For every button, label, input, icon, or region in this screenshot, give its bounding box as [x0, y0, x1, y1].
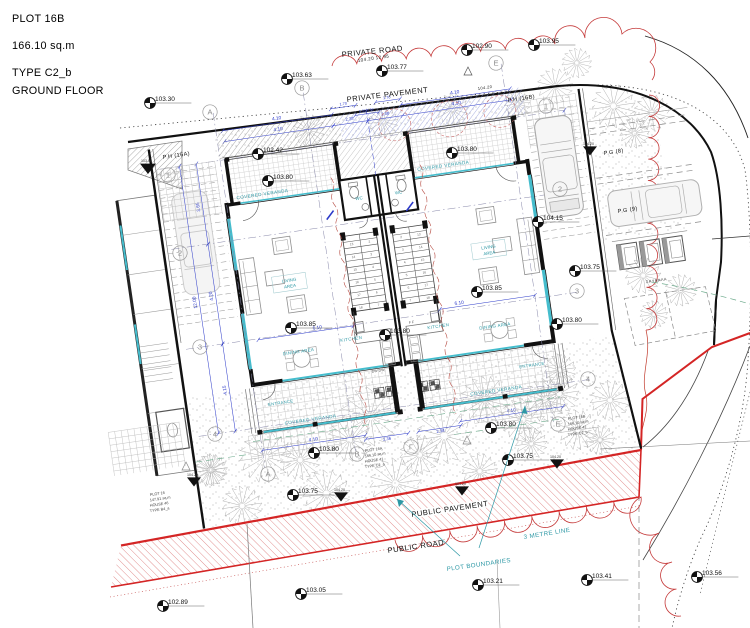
svg-text:PRIVATE PAVEMENT: PRIVATE PAVEMENT [346, 85, 429, 104]
svg-text:103.75: 103.75 [513, 453, 533, 460]
svg-text:KITCHEN: KITCHEN [340, 335, 363, 343]
svg-text:166.10 sq.m: 166.10 sq.m [12, 40, 75, 52]
svg-text:102.90: 102.90 [472, 43, 492, 50]
svg-text:AREA: AREA [483, 250, 496, 257]
svg-text:3: 3 [575, 287, 579, 296]
svg-text:TYPE C2_b: TYPE C2_b [12, 67, 72, 79]
svg-text:3 METRE LINE: 3 METRE LINE [523, 527, 571, 541]
svg-text:103.30: 103.30 [155, 96, 175, 103]
svg-text:B: B [354, 450, 359, 459]
svg-text:GROUND FLOOR: GROUND FLOOR [12, 85, 104, 97]
svg-text:3: 3 [198, 343, 202, 352]
svg-text:B: B [299, 84, 304, 93]
svg-text:AREA: AREA [284, 283, 297, 290]
svg-text:102.42: 102.42 [263, 147, 283, 154]
svg-text:103.21: 103.21 [483, 578, 503, 585]
svg-text:1: 1 [166, 171, 170, 180]
svg-text:103.85: 103.85 [296, 321, 316, 328]
svg-text:103.05: 103.05 [306, 587, 326, 594]
svg-text:1.70: 1.70 [339, 102, 347, 107]
svg-text:4: 4 [586, 375, 590, 384]
svg-text:WC: WC [395, 189, 403, 195]
svg-text:2: 2 [558, 185, 562, 194]
svg-text:104.20: 104.20 [334, 488, 345, 492]
svg-text:PLOT BOUNDARIES: PLOT BOUNDARIES [446, 557, 511, 573]
svg-text:KITCHEN: KITCHEN [427, 322, 450, 330]
svg-text:Γ: Γ [409, 443, 413, 452]
svg-text:104.20: 104.20 [187, 473, 198, 477]
svg-text:103.41: 103.41 [592, 573, 612, 580]
svg-text:4: 4 [213, 430, 217, 439]
svg-text:E: E [493, 59, 498, 68]
svg-text:PLOT 16B: PLOT 16B [12, 13, 65, 25]
svg-text:12.00: 12.00 [191, 296, 199, 309]
svg-text:103.95: 103.95 [539, 38, 559, 45]
svg-text:103.58: 103.58 [141, 159, 152, 163]
svg-text:103.80: 103.80 [457, 146, 477, 153]
svg-text:PUBLIC ROAD: PUBLIC ROAD [387, 538, 445, 555]
svg-text:WC: WC [355, 195, 363, 201]
svg-text:103.85: 103.85 [482, 285, 502, 292]
svg-text:F F: F F [409, 320, 416, 325]
svg-text:104.20: 104.20 [583, 142, 594, 146]
svg-text:103.75: 103.75 [298, 488, 318, 495]
svg-text:102.89: 102.89 [168, 599, 188, 606]
svg-text:2: 2 [178, 249, 182, 258]
svg-text:103.80: 103.80 [562, 317, 582, 324]
svg-text:103.80: 103.80 [273, 174, 293, 181]
svg-text:E: E [555, 420, 560, 429]
svg-text:DINING AREA: DINING AREA [479, 321, 511, 331]
svg-text:ΣΚΥΒΑΛΑ: ΣΚΥΒΑΛΑ [646, 277, 667, 284]
svg-text:104.15: 104.15 [543, 215, 563, 222]
svg-text:103.77: 103.77 [387, 64, 407, 71]
svg-text:1: 1 [544, 102, 548, 111]
svg-text:104.20: 104.20 [455, 482, 466, 486]
svg-text:DINING AREA: DINING AREA [283, 347, 315, 357]
svg-text:103.80: 103.80 [496, 421, 516, 428]
svg-text:103.63: 103.63 [292, 72, 312, 79]
svg-text:103.80: 103.80 [319, 446, 339, 453]
svg-text:103.75: 103.75 [580, 264, 600, 271]
svg-text:A: A [265, 470, 270, 479]
svg-text:103.56: 103.56 [702, 570, 722, 577]
svg-text:103.80: 103.80 [390, 328, 410, 335]
svg-text:4.20: 4.20 [208, 291, 215, 301]
svg-text:104.20: 104.20 [477, 84, 493, 91]
svg-text:104.20: 104.20 [550, 455, 561, 459]
svg-text:A: A [207, 108, 212, 117]
